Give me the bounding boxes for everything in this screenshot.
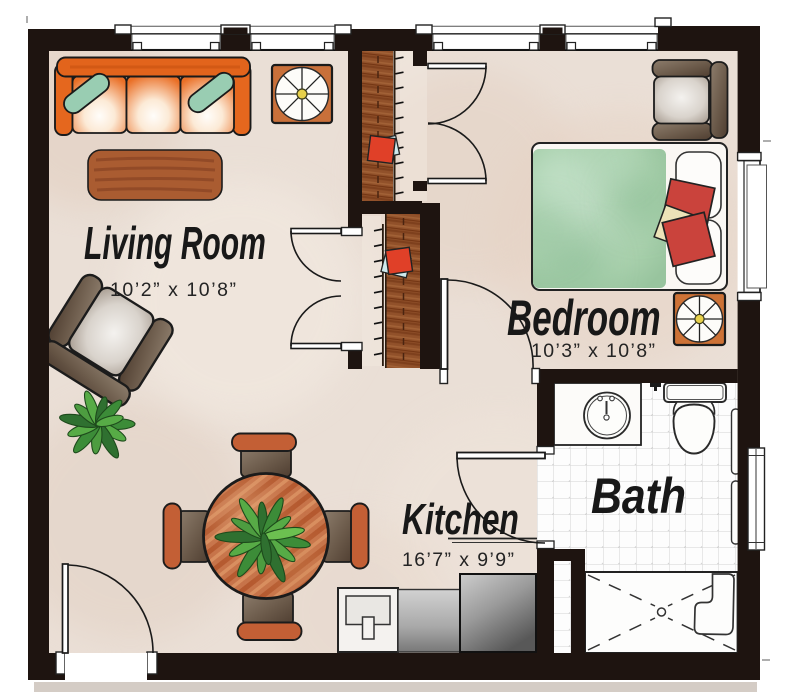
svg-text:Kitchen: Kitchen — [402, 495, 519, 544]
svg-text:Living Room: Living Room — [84, 219, 266, 270]
svg-text:Bedroom: Bedroom — [507, 291, 661, 347]
svg-text:10’2” x 10’8”: 10’2” x 10’8” — [110, 279, 236, 301]
svg-text:10’3” x 10’8”: 10’3” x 10’8” — [531, 340, 655, 362]
svg-text:Bath: Bath — [591, 468, 686, 524]
